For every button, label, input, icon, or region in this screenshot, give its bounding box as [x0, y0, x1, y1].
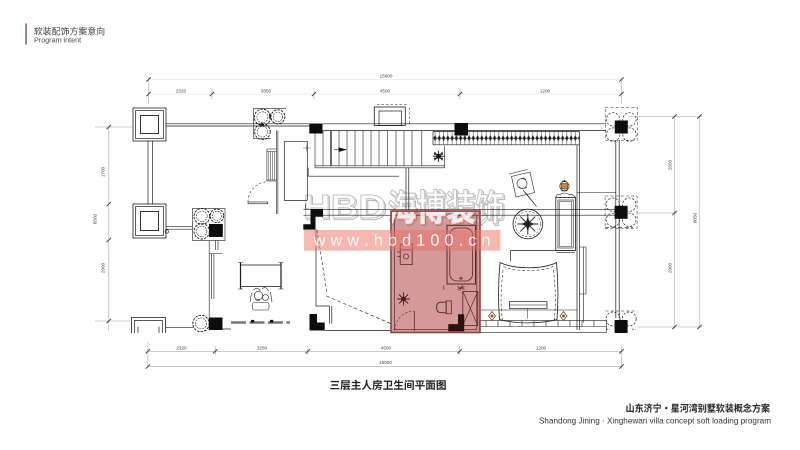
svg-text:Shandong Jining · Xinghewan vi: Shandong Jining · Xinghewan villa concep… [539, 416, 771, 426]
svg-text:Program intent: Program intent [34, 36, 81, 45]
svg-text:1700: 1700 [101, 166, 106, 177]
svg-text:15600: 15600 [379, 360, 392, 365]
svg-text:15600: 15600 [380, 74, 393, 79]
svg-text:3250: 3250 [257, 345, 268, 350]
svg-text:2500: 2500 [668, 159, 673, 170]
svg-text:4500: 4500 [381, 345, 392, 350]
svg-text:6500: 6500 [93, 213, 98, 224]
svg-text:4500: 4500 [380, 89, 391, 94]
svg-text:2900: 2900 [668, 262, 673, 273]
svg-text:1200: 1200 [536, 345, 547, 350]
svg-text:2320: 2320 [176, 345, 187, 350]
svg-text:3350: 3350 [261, 89, 272, 94]
svg-text:1200: 1200 [540, 89, 551, 94]
svg-text:2900: 2900 [101, 262, 106, 273]
svg-text:2320: 2320 [176, 89, 187, 94]
svg-text:6050: 6050 [693, 212, 698, 223]
